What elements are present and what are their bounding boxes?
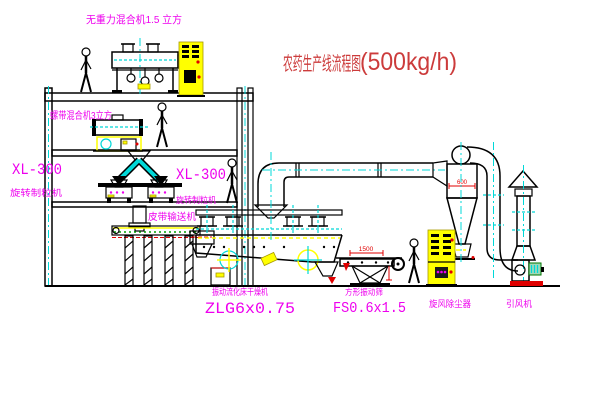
drawing-primitive bbox=[192, 244, 212, 257]
drawing-primitive bbox=[165, 236, 173, 286]
drawing-primitive bbox=[158, 191, 160, 193]
induced-draft-fan bbox=[510, 260, 544, 286]
drawing-primitive bbox=[168, 90, 178, 93]
drawing-primitive bbox=[294, 246, 322, 274]
drawing-primitive bbox=[123, 44, 133, 52]
drawing-primitive bbox=[125, 241, 133, 285]
person-figure bbox=[157, 103, 167, 147]
drawing-primitive bbox=[101, 139, 111, 149]
drawing-primitive bbox=[283, 246, 285, 248]
drawing-primitive bbox=[323, 246, 325, 248]
diagram-title: 农药生产线流程图 bbox=[283, 53, 361, 75]
cyclone-diameter-dim: 600 bbox=[457, 180, 468, 186]
drawing-primitive bbox=[453, 244, 471, 257]
diagram-title-capacity: (500kg/h) bbox=[360, 48, 457, 76]
drawing-primitive bbox=[144, 241, 152, 285]
drawing-primitive bbox=[433, 161, 447, 186]
drawing-primitive bbox=[375, 261, 377, 263]
drawing-primitive bbox=[112, 90, 122, 93]
drawing-primitive bbox=[182, 55, 189, 58]
granulator-left bbox=[98, 176, 140, 203]
control-cabinet-top bbox=[177, 42, 205, 97]
drawing-primitive bbox=[133, 206, 146, 223]
drawing-primitive bbox=[541, 267, 544, 272]
drawing-primitive bbox=[45, 93, 253, 101]
drawing-primitive bbox=[196, 210, 342, 215]
indicator-light bbox=[449, 270, 452, 273]
drawing-primitive bbox=[472, 256, 475, 259]
label-screen-name: 方形振动筛 bbox=[345, 287, 383, 297]
label-granulator-right-name: 旋转制粒机 bbox=[176, 195, 216, 205]
label-top-mixer: 无重力混合机1.5 立方 bbox=[86, 13, 182, 26]
drawing-primitive bbox=[203, 246, 205, 248]
drawing-primitive bbox=[216, 273, 224, 277]
conveyor-supports bbox=[125, 236, 193, 286]
drawing-primitive bbox=[443, 246, 451, 249]
drawing-primitive bbox=[148, 44, 158, 52]
drawing-primitive bbox=[515, 265, 525, 275]
drawing-primitive bbox=[98, 183, 140, 187]
drawing-primitive bbox=[192, 55, 199, 58]
drawing-primitive bbox=[127, 198, 131, 203]
drawing-primitive bbox=[108, 195, 114, 197]
drawing-primitive bbox=[110, 191, 112, 193]
drawing-primitive bbox=[164, 191, 166, 193]
drawing-primitive bbox=[444, 271, 447, 274]
drawing-primitive bbox=[284, 177, 433, 207]
drawing-primitive bbox=[213, 246, 215, 248]
drawing-primitive bbox=[192, 45, 199, 48]
drawing-primitive bbox=[184, 70, 196, 83]
drawing-primitive bbox=[169, 198, 173, 203]
person-figure bbox=[409, 239, 419, 283]
indicator-light bbox=[196, 60, 199, 63]
drawing-primitive bbox=[136, 143, 139, 146]
bolt-row bbox=[203, 246, 335, 248]
drawing-primitive bbox=[333, 246, 335, 248]
drawing-primitive bbox=[437, 271, 440, 274]
indicator-light bbox=[450, 238, 453, 241]
label-second-mixer: 螺带混合机3立方 bbox=[50, 109, 112, 122]
screen-length-dim: 1500 bbox=[359, 246, 374, 253]
cad-flow-diagram: 600 15 bbox=[0, 0, 600, 403]
drawing-primitive bbox=[116, 191, 118, 193]
drawing-primitive bbox=[182, 50, 189, 53]
drawing-primitive bbox=[443, 252, 451, 255]
drawing-primitive bbox=[431, 252, 439, 255]
label-granulator-right-model: XL-300 bbox=[176, 166, 226, 184]
drawing-primitive bbox=[248, 88, 253, 286]
drawing-primitive bbox=[150, 195, 156, 197]
drawing-primitive bbox=[138, 84, 150, 89]
drawing-primitive bbox=[149, 198, 153, 203]
flow-arrow bbox=[328, 277, 336, 284]
label-dryer-model: ZLG6x0.75 bbox=[205, 300, 295, 318]
fluid-bed-dryer bbox=[196, 205, 342, 284]
drawing-primitive bbox=[387, 261, 389, 263]
drawing-primitive bbox=[431, 234, 439, 237]
drawing-primitive bbox=[107, 198, 111, 203]
vibrating-screen: 1500 bbox=[336, 246, 404, 284]
person-figure bbox=[81, 48, 91, 92]
drawing-primitive bbox=[352, 266, 388, 283]
drawing-primitive bbox=[192, 50, 199, 53]
drawing-primitive bbox=[182, 45, 189, 48]
label-granulator-left-model: XL-300 bbox=[12, 161, 62, 179]
label-cyclone: 旋风除尘器 bbox=[429, 298, 471, 309]
drawing-primitive bbox=[177, 95, 205, 97]
label-granulator-left-name: 旋转制粒机 bbox=[10, 187, 62, 198]
drawing-primitive bbox=[431, 246, 439, 249]
drawing-primitive bbox=[263, 246, 265, 248]
drawing-surface: 600 15 bbox=[0, 0, 600, 403]
drawing-primitive bbox=[361, 261, 363, 263]
drawing-primitive bbox=[125, 236, 133, 286]
flow-arrow bbox=[343, 263, 350, 271]
drawing-primitive bbox=[261, 252, 277, 265]
label-fan: 引风机 bbox=[506, 298, 532, 309]
person-figure bbox=[227, 159, 237, 203]
drawing-primitive bbox=[127, 74, 135, 82]
label-belt-conveyor: 皮带输送机 bbox=[148, 211, 196, 223]
drawing-primitive bbox=[223, 246, 225, 248]
control-cabinet-right bbox=[426, 230, 457, 287]
drawing-primitive bbox=[155, 74, 163, 82]
drawing-primitive bbox=[165, 241, 173, 285]
dryer-discharge bbox=[315, 262, 338, 276]
drawing-primitive bbox=[243, 246, 245, 248]
indicator-light bbox=[197, 75, 200, 78]
drawing-primitive bbox=[179, 42, 203, 95]
sample-box bbox=[261, 252, 277, 265]
label-screen-model: FS0.6x1.5 bbox=[333, 300, 406, 317]
drawing-primitive bbox=[122, 191, 124, 193]
drawing-primitive bbox=[123, 141, 127, 144]
drawing-primitive bbox=[443, 240, 451, 243]
label-dryer-name: 振动流化床干燥机 bbox=[212, 286, 268, 297]
drawing-primitive bbox=[426, 284, 457, 287]
drawing-primitive bbox=[352, 266, 388, 283]
drawing-primitive bbox=[185, 241, 193, 285]
drawing-primitive bbox=[443, 234, 451, 237]
drawing-primitive bbox=[440, 271, 443, 274]
drawing-primitive bbox=[152, 191, 154, 193]
fan-base bbox=[510, 281, 543, 286]
drawing-primitive bbox=[431, 240, 439, 243]
drawing-primitive bbox=[397, 263, 400, 266]
drawing-primitive bbox=[144, 236, 152, 286]
drawing-primitive bbox=[253, 246, 255, 248]
